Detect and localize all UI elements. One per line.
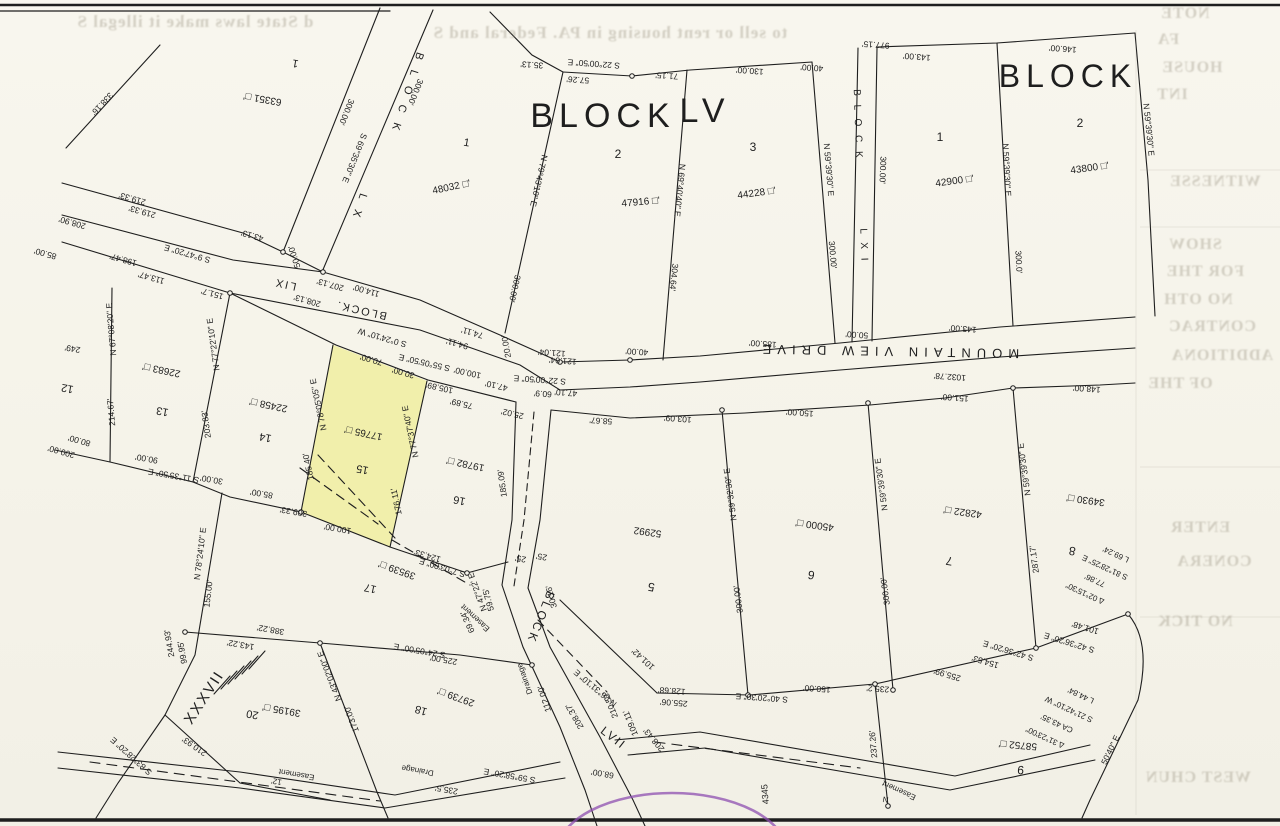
map-label: 207.13' xyxy=(315,276,345,293)
bleed-through-word: INT xyxy=(1156,86,1187,104)
map-label: 109.11' xyxy=(620,708,640,737)
map-label: 237.26' xyxy=(867,730,879,759)
map-label: 208.13' xyxy=(292,292,322,309)
map-label: 39195 □' xyxy=(262,701,302,719)
bleed-through-word: HOUSE xyxy=(1161,59,1222,77)
map-label: 50.00' xyxy=(845,329,869,341)
map-label: 68.00' xyxy=(590,767,615,781)
map-label: 15 xyxy=(355,462,369,476)
map-label: 146.00' xyxy=(1048,43,1077,55)
map-label: 150.00' xyxy=(802,683,831,695)
map-label: S 59°58'20" E xyxy=(482,766,536,785)
map-label: 16 xyxy=(452,493,466,507)
map-label: 35.13' xyxy=(520,59,544,71)
map-label: 14 xyxy=(258,430,272,444)
map-label: 255.06' xyxy=(659,697,688,709)
bleed-through-word: CONERA xyxy=(1176,553,1251,571)
map-label: 43800 □' xyxy=(1070,160,1110,176)
map-label: MOUNTAIN VIEW DRIVE xyxy=(757,342,1020,362)
map-label: 90.00' xyxy=(134,452,159,466)
map-label: 300.00' xyxy=(337,97,357,127)
bleed-through-word: NO OTH xyxy=(1163,291,1233,309)
map-label: 18 xyxy=(414,702,429,717)
map-label: N 77°22'10" E xyxy=(204,317,221,371)
scan-artifact-lines xyxy=(1136,30,1280,815)
map-label: 47.10' xyxy=(484,378,509,393)
map-label: LVII xyxy=(598,724,629,753)
map-label: 40.00' xyxy=(800,62,824,74)
map-label: 50.00' xyxy=(286,244,303,269)
map-label: S 11°35'50" E xyxy=(147,466,200,485)
map-label: 12 xyxy=(60,381,74,395)
map-label: 338.16' xyxy=(89,91,115,118)
map-label: 7 xyxy=(944,553,953,568)
map-label: 130.00' xyxy=(735,65,764,77)
map-label: L 44.84' xyxy=(1066,685,1096,705)
map-label: XXXVII xyxy=(181,668,228,728)
map-label: S 22°00'50" E xyxy=(513,373,566,387)
map-label: 25' xyxy=(514,553,527,565)
bleed-through-word: to sell or rent housing in PA. Federal a… xyxy=(433,23,788,43)
map-label: 47.10' xyxy=(554,387,578,399)
bleed-through-word: NO TICK xyxy=(1157,613,1233,631)
map-label: 198.47' xyxy=(108,251,138,268)
map-label: 208.43' xyxy=(641,726,667,754)
map-label: 22458 □' xyxy=(248,395,288,414)
map-label: S 40°20'30" E xyxy=(735,691,788,705)
map-label: 58.67' xyxy=(589,415,613,427)
bleed-through-word: CONTRAC xyxy=(1168,318,1256,336)
map-label: 42900 □' xyxy=(935,173,975,189)
map-label: N xyxy=(882,794,889,804)
map-label: 300.00' xyxy=(878,156,889,184)
map-label: 2 xyxy=(1077,116,1084,130)
map-label: 77.86' xyxy=(1083,571,1107,588)
map-label: N 43°02'00" E xyxy=(315,649,343,702)
map-label: 151.7' xyxy=(199,286,224,302)
map-label: 45000 □' xyxy=(795,516,835,532)
map-label: 58752 □' xyxy=(998,737,1037,751)
map-label: 57.26' xyxy=(566,74,590,86)
map-label: S 22°00'50" E xyxy=(567,57,620,71)
map-label: BLOCK xyxy=(999,58,1137,94)
map-label: 1 xyxy=(937,130,944,144)
map-label: 148.00' xyxy=(1072,383,1101,395)
map-label: N 59°39'30" E xyxy=(1015,442,1032,496)
bleed-through-word: ADDITIONA xyxy=(1171,347,1273,365)
map-label: 25' xyxy=(535,551,548,563)
map-label: 6 xyxy=(806,567,815,582)
map-label: 29739 □' xyxy=(436,685,476,709)
map-label: 99.95' xyxy=(175,640,189,665)
map-label: 75.89' xyxy=(449,396,474,411)
map-label: 20.00' xyxy=(499,334,513,359)
map-label: 25.02' xyxy=(500,406,525,421)
map-label: 210.93' xyxy=(180,734,209,758)
map-label: N 59°39'30" E xyxy=(1001,143,1014,197)
map-label: L X xyxy=(349,192,369,222)
map-label: 80.00' xyxy=(66,433,91,449)
map-label: BLOCK xyxy=(530,97,675,135)
map-label: 101.42' xyxy=(629,646,656,672)
map-label: N 69°40'40" E xyxy=(672,163,688,217)
map-label: 185.09' xyxy=(495,469,509,498)
map-label: 1032.78' xyxy=(933,371,966,383)
map-label: L X I xyxy=(857,228,869,264)
map-label: 9 xyxy=(1016,763,1024,778)
map-label: 71.15' xyxy=(655,70,679,82)
map-label: N 59°39'30" E xyxy=(822,143,837,197)
map-label: Drainage xyxy=(400,763,434,778)
map-label: 304.64' xyxy=(668,263,681,292)
map-label: 43.13' xyxy=(239,228,264,244)
map-label: S 7°03'00" E xyxy=(418,556,467,580)
map-label: 151.00' xyxy=(940,392,969,404)
map-label: 48032 □' xyxy=(431,178,471,197)
map-label: S 9°47'20" E xyxy=(163,242,212,265)
map-label: 94.11' xyxy=(445,336,470,352)
map-label: 22683 □' xyxy=(141,360,181,379)
map-label: 34930 □' xyxy=(1066,491,1106,507)
map-label: 214.67' xyxy=(105,398,117,427)
map-labels-layer: BLOCKLVBLOCKMOUNTAIN VIEW DRIVEB L O C K… xyxy=(32,39,1156,805)
map-label: 44228 □' xyxy=(737,185,777,201)
map-label: 85.00' xyxy=(32,246,57,262)
map-label: 42822 □' xyxy=(943,503,983,519)
bleed-through-word: NOTE xyxy=(1160,5,1209,23)
map-label: 47916 □' xyxy=(621,195,660,209)
map-label: 4345 xyxy=(759,784,771,805)
map-label: 235.2' xyxy=(866,683,890,695)
map-label: 1 xyxy=(291,57,299,70)
map-label: 300.0' xyxy=(1013,250,1024,274)
map-label: 208.90' xyxy=(57,214,87,231)
map-label: 235.5' xyxy=(434,783,459,797)
map-label: 150.00' xyxy=(785,407,814,419)
map-label: 3 xyxy=(750,140,757,154)
map-label: 63351 □' xyxy=(243,90,283,108)
map-label: 103.09' xyxy=(663,413,692,425)
map-label: 300.00' xyxy=(731,585,745,614)
map-label: 249' xyxy=(63,343,81,356)
map-label: 5 xyxy=(646,579,655,594)
map-label: 128.68' xyxy=(657,685,686,697)
map-label: LIX xyxy=(273,276,298,293)
map-label: 143.00' xyxy=(948,323,977,335)
map-label: 112.00' xyxy=(535,684,553,713)
map-label: 977.15' xyxy=(861,39,890,51)
map-label: 8 xyxy=(1067,543,1076,558)
map-label: N 59°32'30" E xyxy=(721,467,738,521)
map-label: 173.00' xyxy=(341,704,360,734)
map-label: 12' xyxy=(270,776,282,787)
map-label: 155.00' xyxy=(201,579,214,608)
bleed-through-word: FA xyxy=(1157,31,1179,49)
map-label: 185.00' xyxy=(748,338,777,350)
map-label: 244.93' xyxy=(162,629,177,658)
map-label: 17 xyxy=(363,581,377,595)
map-label: 388.22' xyxy=(256,623,285,638)
map-label: 39539 □' xyxy=(377,558,417,582)
bleed-through-word: WITNESSE xyxy=(1169,173,1261,191)
map-label: 19782 □' xyxy=(445,454,485,473)
bleed-through-word: WEST CHUN xyxy=(1145,769,1251,787)
map-label: 143.00' xyxy=(902,51,931,63)
map-label: 203.83' xyxy=(199,410,213,439)
map-label: 210.53' xyxy=(600,690,620,720)
bleed-through-word: d State laws make it illegal S xyxy=(77,12,314,32)
map-label: 74.11' xyxy=(460,325,485,341)
bleed-through-word: OF THE xyxy=(1147,375,1212,393)
map-label: 300.00' xyxy=(507,274,523,304)
map-label: 60.9' xyxy=(533,388,552,399)
plat-map-drawing: BLOCKLVBLOCKMOUNTAIN VIEW DRIVEB L O C K… xyxy=(0,0,1280,826)
map-label: S 69°35'30" E xyxy=(340,132,369,185)
map-label: LV xyxy=(679,92,730,130)
map-label: 50'40" E xyxy=(1099,733,1122,766)
bleed-through-word: SHOW xyxy=(1168,236,1222,254)
map-label: 2 xyxy=(615,147,622,161)
map-label: L 69.24' xyxy=(1101,544,1131,564)
map-label: 154.53' xyxy=(970,653,1000,671)
map-label: B L O C K xyxy=(851,89,864,161)
map-label: 13 xyxy=(155,404,169,418)
map-label: 30.00' xyxy=(199,473,224,487)
map-label: 255.99' xyxy=(932,666,962,684)
bleed-through-word: ENTER xyxy=(1170,519,1230,537)
map-label: 143.22' xyxy=(226,638,255,653)
map-label: N 79°43'10" E xyxy=(528,154,550,208)
map-label: 200.00' xyxy=(46,443,76,460)
map-label: 121.04' xyxy=(548,355,577,367)
map-label: 300.00' xyxy=(878,577,892,606)
map-label: 1 xyxy=(462,137,470,150)
plat-map-scan: BLOCKLVBLOCKMOUNTAIN VIEW DRIVEB L O C K… xyxy=(0,0,1280,826)
map-label: 40.00' xyxy=(625,346,649,358)
map-label: 85.00' xyxy=(249,487,274,501)
map-label: 20 xyxy=(245,707,259,721)
map-label: N 78°24'10" E xyxy=(192,526,208,580)
map-label: 100.00' xyxy=(452,365,482,381)
map-label: N 67°08'20" E xyxy=(104,302,119,356)
map-label: 52992 xyxy=(633,524,663,539)
map-label: S 0°24'10" W xyxy=(357,326,408,349)
bleed-through-word: FOR THE xyxy=(1166,263,1244,281)
